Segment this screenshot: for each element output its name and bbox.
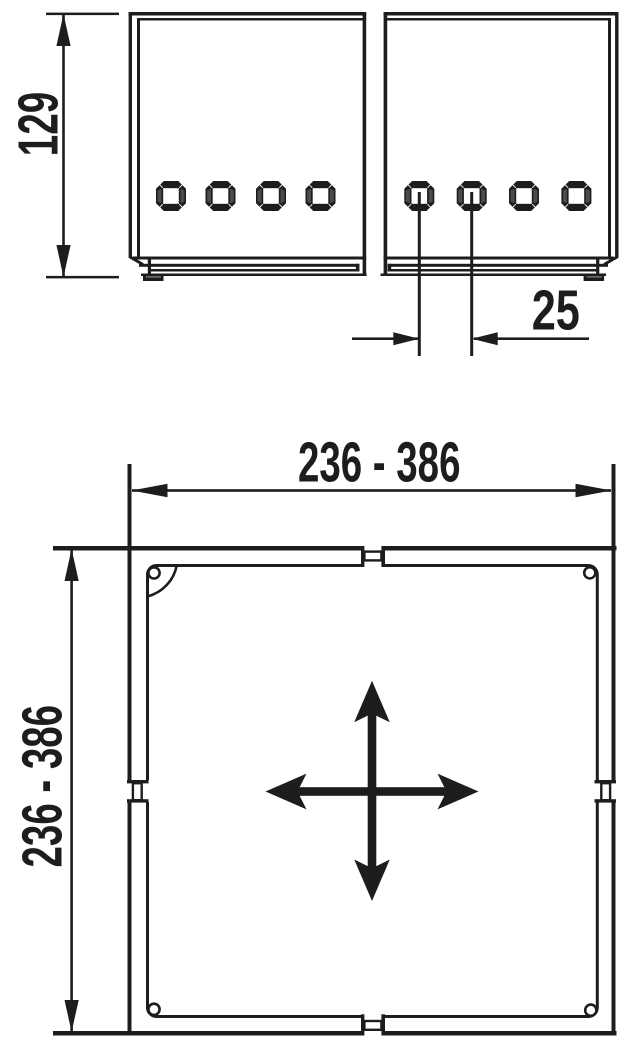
svg-text:129: 129 bbox=[7, 92, 70, 156]
svg-text:25: 25 bbox=[532, 278, 580, 342]
svg-text:236 - 386: 236 - 386 bbox=[11, 705, 74, 868]
svg-text:236 - 386: 236 - 386 bbox=[298, 431, 461, 494]
